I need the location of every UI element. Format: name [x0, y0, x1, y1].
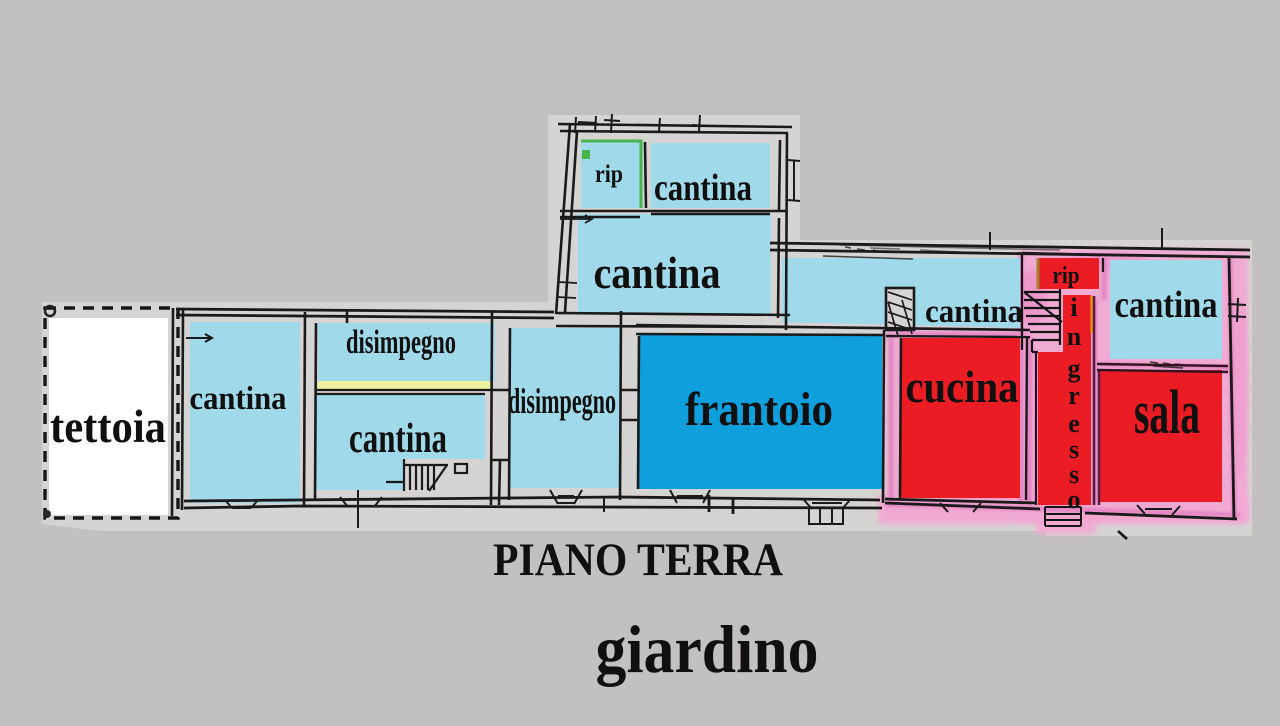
svg-text:g: g	[1068, 354, 1081, 383]
svg-text:rip: rip	[595, 161, 623, 188]
svg-text:o: o	[1068, 485, 1081, 514]
svg-text:r: r	[1068, 381, 1080, 410]
svg-text:frantoio: frantoio	[685, 383, 833, 436]
svg-text:e: e	[1068, 409, 1080, 438]
svg-text:PIANO TERRA: PIANO TERRA	[493, 534, 783, 586]
svg-text:cantina: cantina	[654, 167, 752, 209]
svg-text:giardino: giardino	[596, 611, 819, 687]
svg-text:cantina: cantina	[925, 294, 1023, 330]
svg-text:rip: rip	[1053, 263, 1080, 289]
svg-text:cantina: cantina	[349, 416, 447, 462]
svg-text:disimpegno: disimpegno	[346, 324, 456, 361]
svg-text:disimpegno: disimpegno	[508, 381, 616, 421]
svg-text:cantina: cantina	[190, 381, 287, 417]
svg-text:n: n	[1067, 322, 1082, 351]
svg-text:cantina: cantina	[594, 247, 721, 298]
svg-text:sala: sala	[1134, 379, 1200, 447]
svg-text:i: i	[1070, 293, 1077, 322]
svg-text:tettoia: tettoia	[50, 401, 166, 453]
svg-text:cucina: cucina	[906, 361, 1019, 412]
svg-text:cantina: cantina	[1115, 284, 1218, 326]
